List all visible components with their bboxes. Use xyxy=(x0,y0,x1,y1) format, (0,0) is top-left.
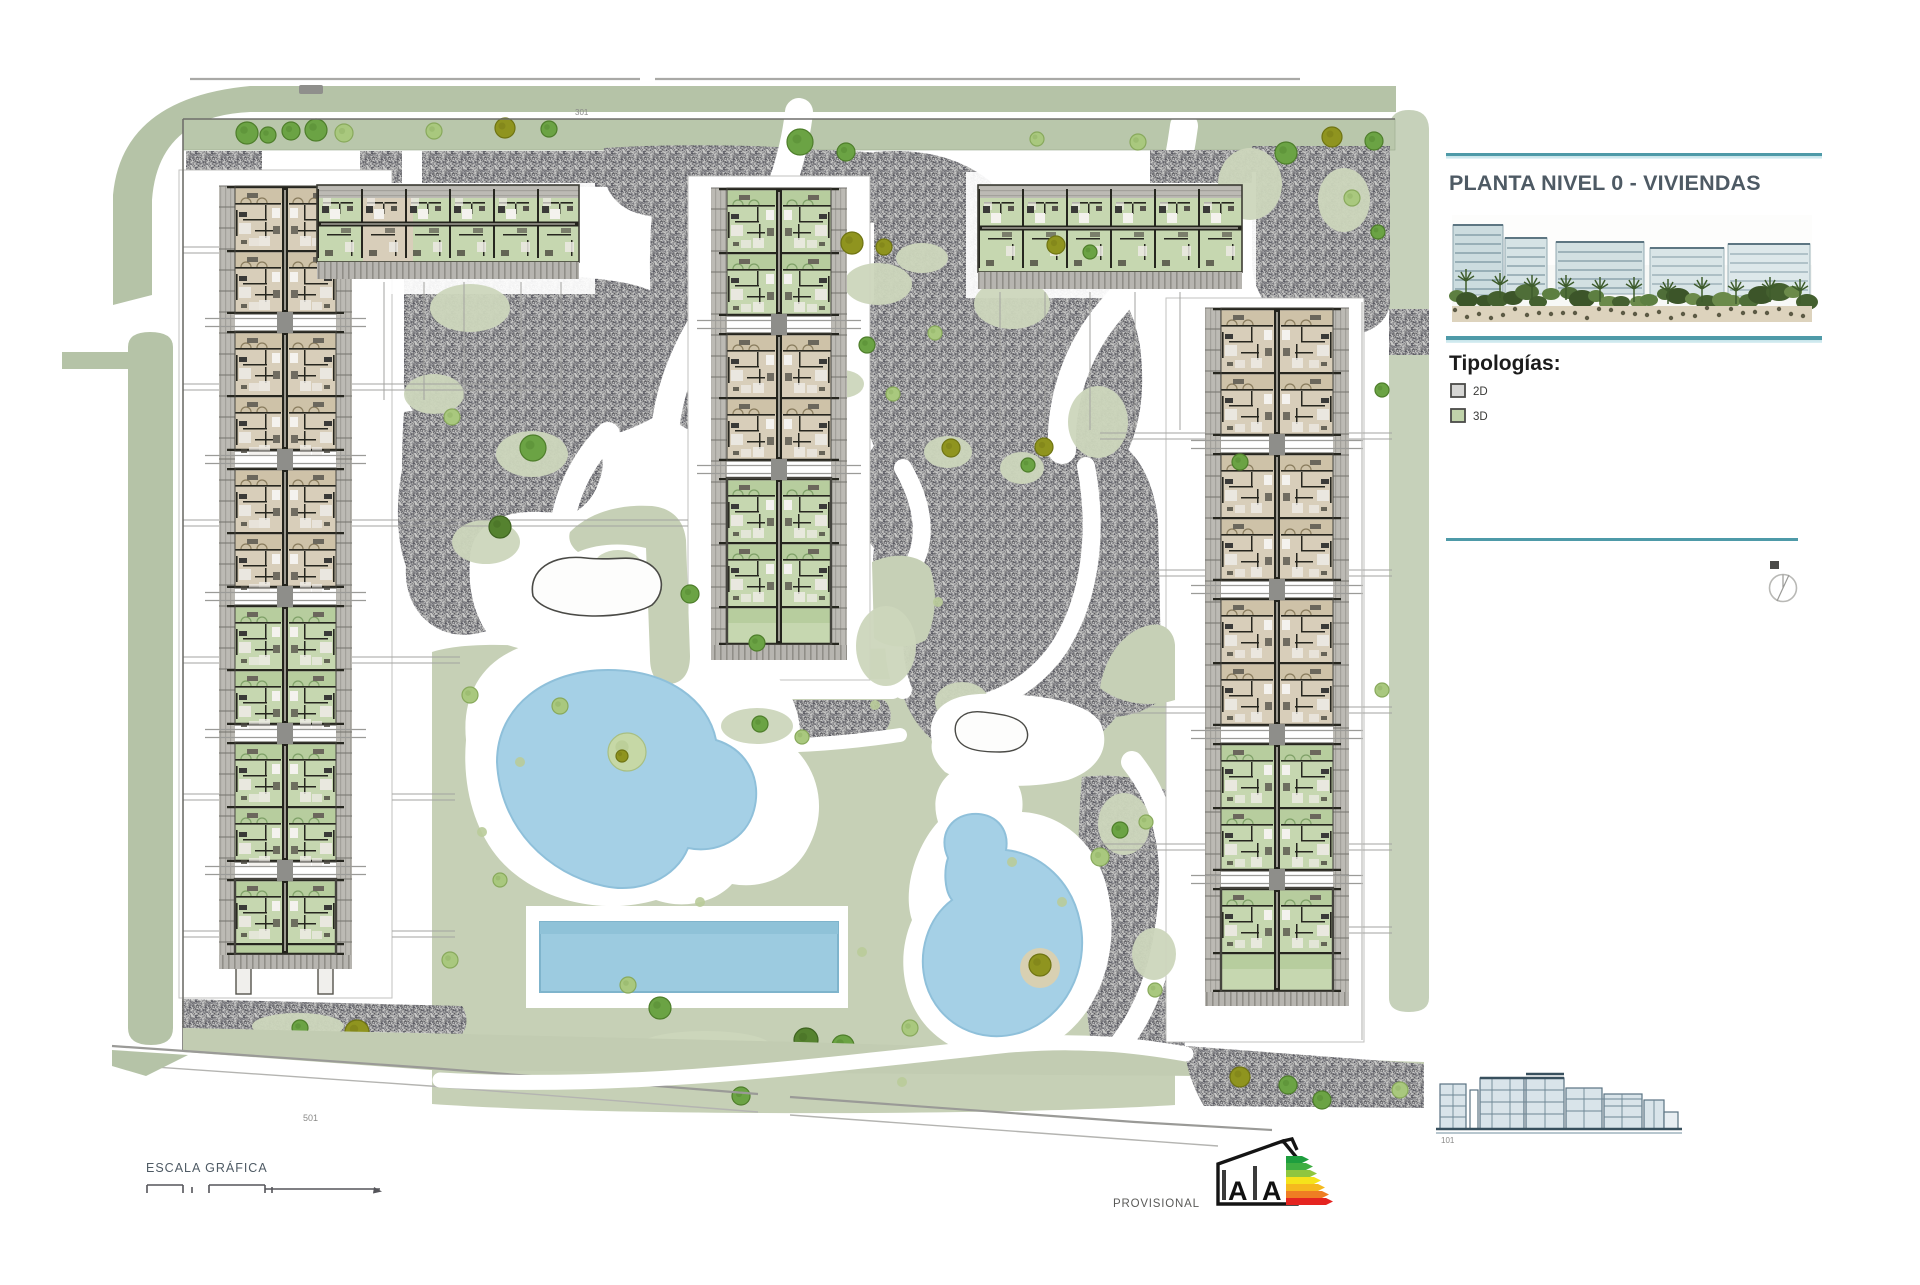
svg-text:ESCALA GRÁFICA: ESCALA GRÁFICA xyxy=(146,1160,268,1175)
svg-text:A: A xyxy=(1228,1176,1248,1206)
svg-text:2D: 2D xyxy=(1473,386,1488,398)
svg-text:Tipologías:: Tipologías: xyxy=(1449,352,1561,375)
svg-text:A: A xyxy=(1262,1176,1282,1206)
svg-text:301: 301 xyxy=(575,108,589,117)
svg-text:501: 501 xyxy=(303,1113,318,1123)
svg-text:3D: 3D xyxy=(1473,411,1488,423)
svg-text:PROVISIONAL: PROVISIONAL xyxy=(1113,1198,1200,1210)
svg-text:101: 101 xyxy=(1441,1136,1455,1145)
svg-text:PLANTA NIVEL 0 - VIVIENDAS: PLANTA NIVEL 0 - VIVIENDAS xyxy=(1449,171,1761,195)
